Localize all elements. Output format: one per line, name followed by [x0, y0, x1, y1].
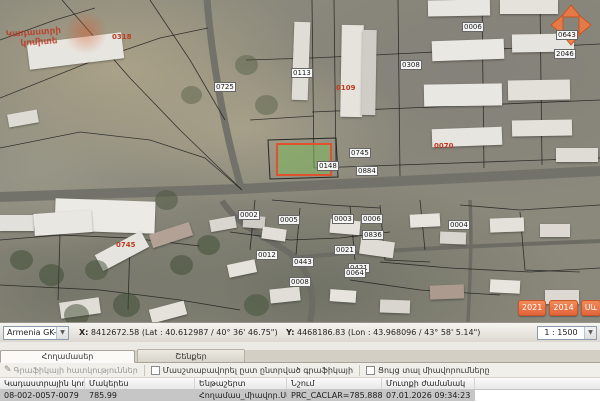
parcel-label: 0836	[362, 230, 384, 240]
scale-select[interactable]: 1 : 1500 ▼	[537, 326, 597, 340]
cell-note: PRC_CACLAR=785.8884738 , PRC...	[287, 390, 382, 401]
parcel-label: 0745	[349, 148, 371, 158]
y-value: 4468186.83 (Lon : 43.968096 / 43° 58' 5.…	[297, 328, 480, 337]
x-value: 8412672.58 (Lat : 40.612987 / 40° 36' 46…	[91, 328, 278, 337]
x-label: X:	[79, 328, 88, 337]
building	[440, 232, 466, 245]
parcel-label: 0725	[214, 82, 236, 92]
pan-right-icon[interactable]	[579, 15, 591, 35]
parcel-label: 0002	[238, 210, 260, 220]
parcel-label: 0884	[356, 166, 378, 176]
header-cadastral-code[interactable]: Կադաստրային կոդ	[0, 378, 85, 389]
header-entry-time[interactable]: Մուտքի ժամանակ	[382, 378, 475, 389]
show-units-label: Ցույց տալ միավորումները	[378, 366, 490, 375]
parcel-label: 0064	[344, 268, 366, 278]
parcel-label: 0308	[400, 60, 422, 70]
header-note[interactable]: Նշում	[287, 378, 382, 389]
building	[0, 215, 34, 231]
building	[432, 39, 505, 62]
year-button-2014[interactable]: 2014	[549, 300, 577, 316]
coordinates-readout: X: 8412672.58 (Lat : 40.612987 / 40° 36'…	[79, 328, 480, 337]
panel-tabs: Հողամասեր Շենքեր	[0, 350, 600, 363]
year-button-Սև[interactable]: Սև	[581, 300, 600, 316]
parcel-label: 0012	[256, 250, 278, 260]
parcel-label: 0109	[336, 84, 355, 92]
building	[512, 119, 572, 136]
cell-cadastral-code: 08-002-0057-0079	[0, 390, 85, 401]
building	[340, 25, 364, 117]
cell-entry-time: 07.01.2026 09:34:23	[382, 390, 475, 401]
cell-area: 785.99	[85, 390, 195, 401]
building	[33, 210, 92, 236]
building	[380, 299, 410, 313]
projection-value: Armenia GK-8	[4, 328, 56, 337]
parcel-label: 0643	[556, 30, 578, 40]
parcel-label: 2046	[554, 49, 576, 59]
chevron-down-icon[interactable]: ▼	[584, 327, 596, 339]
chevron-down-icon[interactable]: ▼	[56, 327, 68, 339]
parcel-label: 0148	[317, 161, 339, 171]
building	[490, 279, 521, 294]
panel-toolbar: ✎ Գրաֆիկայի հատկություններ Մասշտաբավորել…	[0, 363, 600, 378]
parcel-label: 0443	[292, 257, 314, 267]
building	[556, 148, 598, 162]
table-row[interactable]: 08-002-0057-0079 785.99 Հողամաս_միավոր.Ս…	[0, 390, 475, 401]
building	[410, 213, 441, 228]
year-buttons: 20212014Սև3	[518, 300, 600, 316]
cadastre-gis-app: Կադաստրի կոմիտե 031807250113010903080006…	[0, 0, 600, 402]
tab-buildings[interactable]: Շենքեր	[137, 349, 245, 362]
building	[424, 83, 502, 106]
parcel-label: 0004	[448, 220, 470, 230]
building	[508, 79, 570, 100]
pencil-icon: ✎	[4, 365, 12, 375]
divider	[359, 365, 360, 376]
y-label: Y:	[286, 328, 294, 337]
parcel-label: 0745	[116, 241, 135, 249]
parcel-label: 0006	[361, 214, 383, 224]
map-viewport[interactable]: Կադաստրի կոմիտե 031807250113010903080006…	[0, 0, 600, 322]
parcel-label: 0008	[289, 277, 311, 287]
attributes-table: Կադաստրային կոդ Մակերես Ենթաշերտ Նշում Մ…	[0, 378, 600, 402]
scale-value: 1 : 1500	[538, 328, 584, 337]
show-units-checkbox[interactable]	[366, 366, 375, 375]
status-bar: Armenia GK-8 ▼ X: 8412672.58 (Lat : 40.6…	[0, 322, 600, 342]
table-header-row: Կադաստրային կոդ Մակերես Ենթաշերտ Նշում Մ…	[0, 378, 600, 390]
building	[330, 289, 357, 303]
tab-parcels[interactable]: Հողամասեր	[0, 350, 135, 363]
parcel-label: 0070	[434, 142, 453, 150]
parcel-label: 0021	[334, 245, 356, 255]
parcel-label: 0318	[112, 33, 131, 41]
zoom-to-selected-checkbox[interactable]	[151, 366, 160, 375]
selected-parcel[interactable]	[276, 143, 332, 176]
projection-select[interactable]: Armenia GK-8 ▼	[3, 326, 69, 340]
cell-sublayer: Հողամաս_միավոր.Սահմանվ	[195, 390, 287, 401]
parcel-label: 0113	[291, 68, 313, 78]
header-sublayer[interactable]: Ենթաշերտ	[195, 378, 287, 389]
building	[430, 284, 464, 299]
pan-control	[548, 2, 594, 48]
parcel-label: 0006	[462, 22, 484, 32]
zoom-to-selected-label: Մասշտաբավորել ըստ ընտրված գրաֆիկայի	[163, 366, 353, 375]
building	[361, 30, 376, 115]
building	[428, 0, 490, 17]
parcel-label: 0005	[278, 215, 300, 225]
divider	[144, 365, 145, 376]
building	[490, 217, 524, 232]
year-button-2021[interactable]: 2021	[518, 300, 546, 316]
pan-up-icon[interactable]	[561, 5, 581, 17]
header-area[interactable]: Մակերես	[85, 378, 195, 389]
building	[292, 22, 311, 101]
attribute-panel: Հողամասեր Շենքեր ✎ Գրաֆիկայի հատկություն…	[0, 342, 600, 402]
parcel-label: 0003	[332, 214, 354, 224]
graphics-properties-button[interactable]: Գրաֆիկայի հատկություններ	[14, 366, 138, 375]
building	[540, 224, 570, 237]
